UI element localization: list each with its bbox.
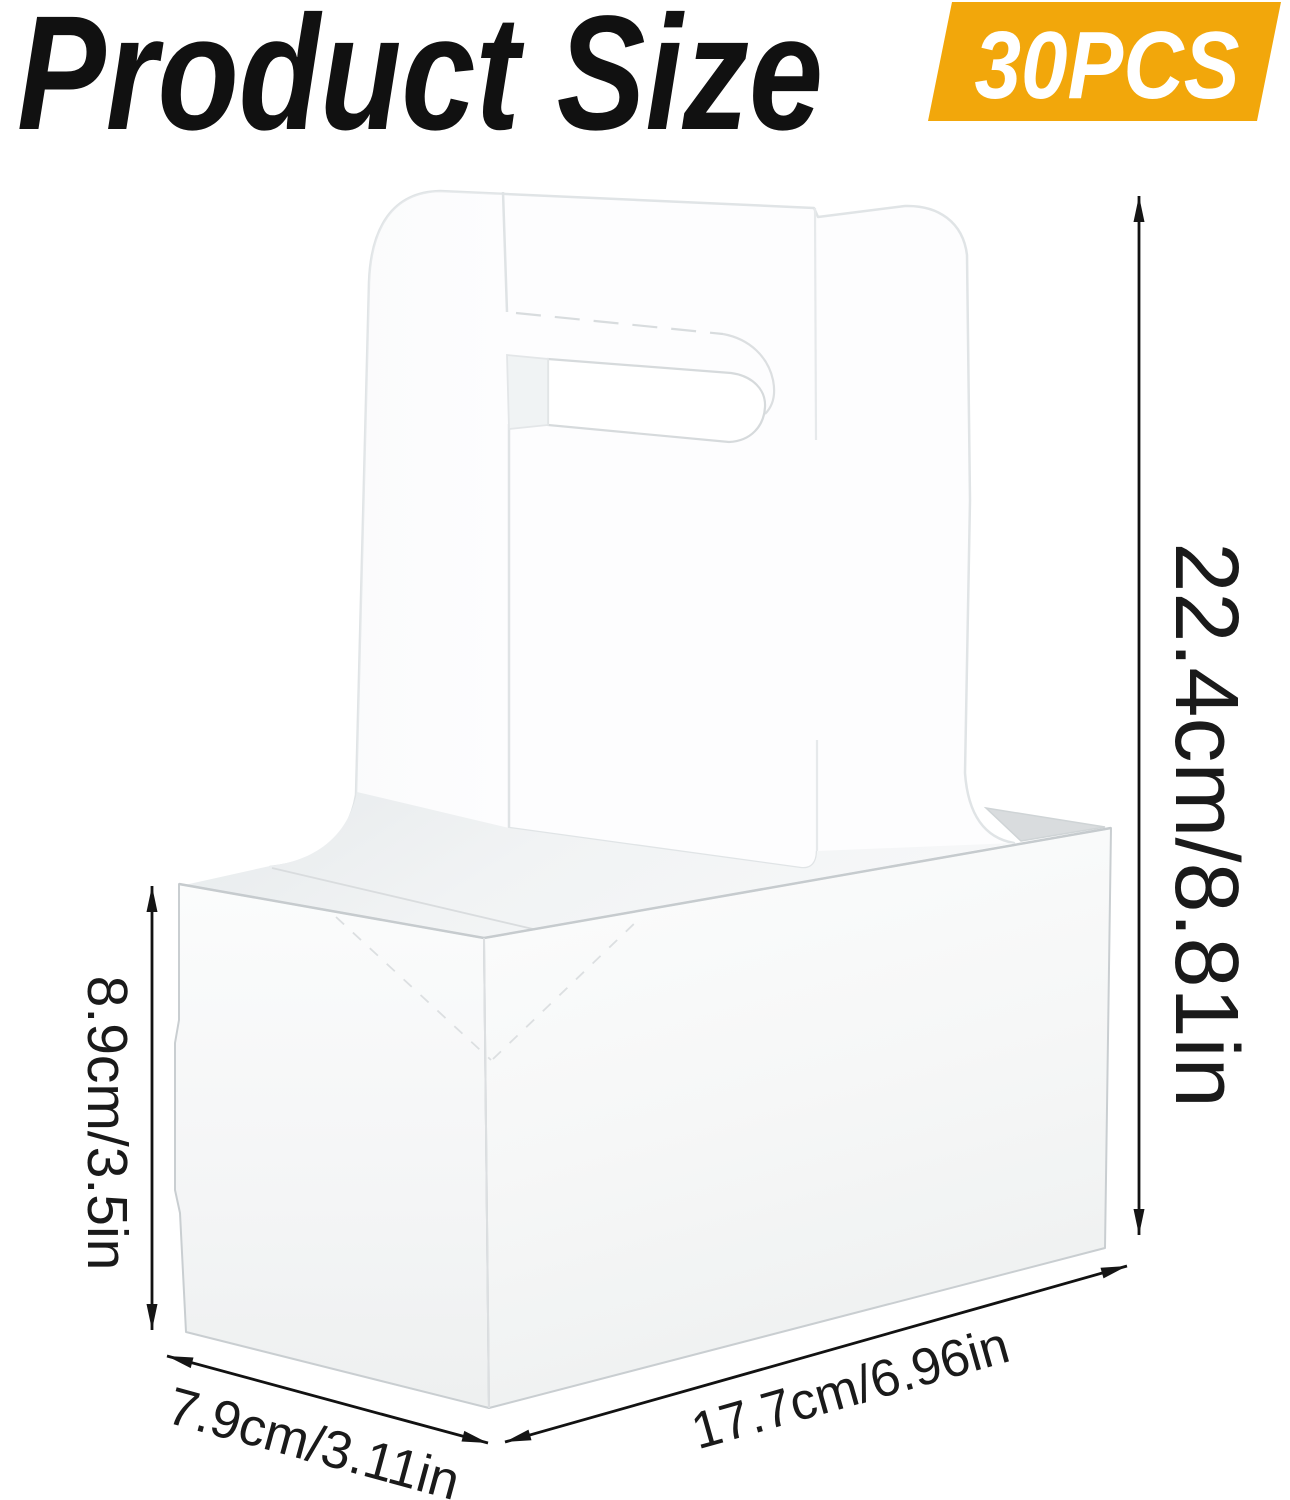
svg-text:30PCS: 30PCS: [975, 12, 1240, 119]
svg-text:22.4cm/8.81in: 22.4cm/8.81in: [1156, 542, 1256, 1107]
svg-text:Product Size: Product Size: [17, 0, 823, 164]
svg-text:8.9cm/3.5in: 8.9cm/3.5in: [75, 976, 139, 1271]
